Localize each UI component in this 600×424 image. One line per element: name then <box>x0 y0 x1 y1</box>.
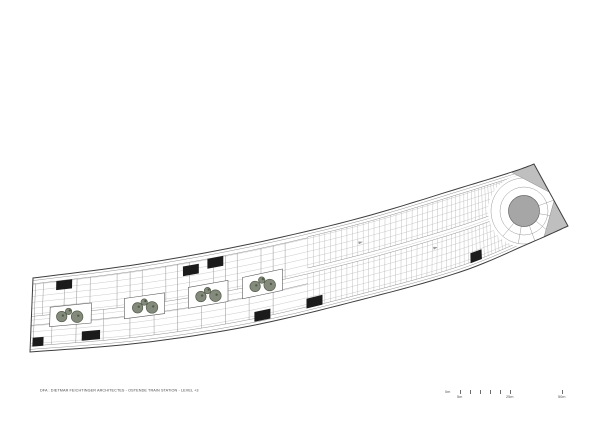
scale-label-50m: 50m <box>558 395 565 399</box>
scale-bar: 0m 5m 25m 50m <box>445 390 580 404</box>
tree-icon <box>210 290 222 302</box>
tree-icon <box>250 281 260 291</box>
scale-tick <box>460 390 461 394</box>
tree-icon <box>71 311 83 323</box>
scale-tick <box>480 390 481 394</box>
scale-tick <box>510 390 511 394</box>
tree-icon <box>264 279 276 291</box>
tree-icon <box>259 277 265 283</box>
stair-core-icon <box>82 330 100 341</box>
tree-icon <box>146 302 158 314</box>
spiral-ramp-icon <box>509 196 540 227</box>
tree-icon <box>141 299 147 305</box>
tree-icon <box>132 303 142 313</box>
scale-label-zero: 0m <box>445 390 450 394</box>
tree-icon <box>65 308 71 314</box>
drawing-sheet: DFA : DIETMAR FEICHTINGER ARCHITECTES - … <box>0 0 600 424</box>
scale-label-5m: 5m <box>457 395 462 399</box>
scale-label-25m: 25m <box>506 395 513 399</box>
tree-icon <box>204 287 210 293</box>
tree-icon <box>57 311 67 321</box>
floor-plan-drawing <box>0 0 600 424</box>
scale-tick <box>500 390 501 394</box>
scale-tick <box>562 390 563 394</box>
building-body <box>30 164 568 352</box>
scale-tick <box>470 390 471 394</box>
drawing-caption: DFA : DIETMAR FEICHTINGER ARCHITECTES - … <box>40 388 199 392</box>
planter-with-trees <box>50 303 92 327</box>
stair-core-icon <box>32 337 43 347</box>
scale-tick <box>490 390 491 394</box>
tree-icon <box>196 291 206 301</box>
